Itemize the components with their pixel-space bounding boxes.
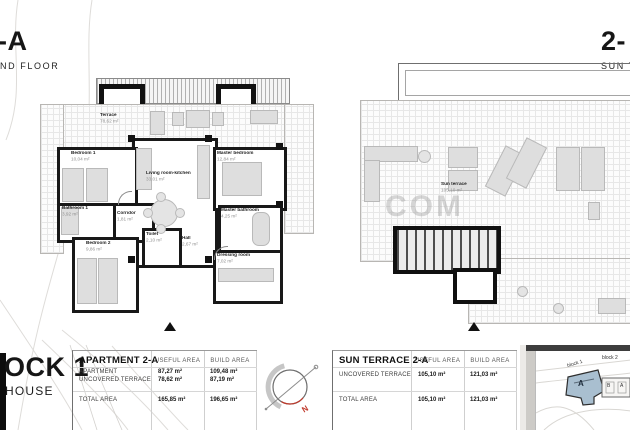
pillar xyxy=(128,256,135,263)
total-value: 105,10 m² xyxy=(418,397,445,403)
room-label-master-bedroom: Master bedroom12,84 m² xyxy=(217,151,253,163)
page-subtitle-left: ND FLOOR xyxy=(0,61,59,71)
page-title-right: 2- xyxy=(601,26,626,57)
floor-plan-sheet: -A ND FLOOR 2- SUN TE xyxy=(0,0,630,430)
table-rule xyxy=(333,367,517,368)
north-marker-icon xyxy=(468,322,480,331)
dining-chair xyxy=(156,192,166,202)
site-map: block 1 block 2 A B A xyxy=(520,345,630,430)
table-rule xyxy=(73,367,257,368)
site-map-side-strip xyxy=(526,351,535,430)
room-label-master-bathroom: Master bathroom4,25 m² xyxy=(221,208,259,220)
col-header-useful: USEFUL AREA xyxy=(151,358,204,364)
sun-lounger xyxy=(556,147,580,191)
table-rule xyxy=(73,391,257,392)
block-subtitle: HOUSE xyxy=(5,384,54,398)
table-title: APARTMENT 2-A xyxy=(79,355,158,366)
stair-annex xyxy=(453,268,497,304)
terrace-chair xyxy=(172,112,184,126)
pillar xyxy=(205,256,212,263)
terrace-lounger xyxy=(150,111,165,135)
bed xyxy=(86,168,108,202)
total-value: 196,65 m² xyxy=(210,397,237,403)
total-label: TOTAL AREA xyxy=(79,397,117,403)
total-label: TOTAL AREA xyxy=(339,397,377,403)
table-rule xyxy=(333,391,517,392)
wardrobe xyxy=(218,268,274,282)
round-table xyxy=(553,303,564,314)
col-header-build: BUILD AREA xyxy=(464,358,516,364)
dining-chair xyxy=(143,208,153,218)
compass-icon: N xyxy=(254,353,326,423)
pillar xyxy=(276,201,283,208)
sofa xyxy=(136,148,152,190)
pillar xyxy=(205,135,212,142)
room-label-dressing: Dressing room7,02 m² xyxy=(217,253,250,265)
stair-core xyxy=(393,226,501,274)
room-label-bathroom1: Bathroom 13,92 m² xyxy=(62,206,88,218)
pillar xyxy=(128,135,135,142)
dining-table xyxy=(150,199,178,227)
roof-outline-inner xyxy=(405,70,630,96)
row-value: 87,27 m² xyxy=(158,369,182,375)
total-value: 121,03 m² xyxy=(470,397,497,403)
lounge-chair xyxy=(448,147,478,168)
watermark-text: COM xyxy=(385,190,464,224)
site-map-card: block 1 block 2 A B A xyxy=(535,351,630,430)
row-value: 78,62 m² xyxy=(158,377,182,383)
row-label: APARTMENT xyxy=(79,369,117,375)
room-label-corridor: Corridor1,81 m² xyxy=(117,211,136,223)
unit-a-label: A xyxy=(578,379,584,388)
room-label-bedroom2: Bedroom 29,86 m² xyxy=(86,241,110,253)
master-bed xyxy=(222,162,262,196)
block2-unit-a-label: A xyxy=(620,383,623,389)
total-value: 165,85 m² xyxy=(158,397,185,403)
bed xyxy=(62,168,84,202)
room-label-hall: Hall2,67 m² xyxy=(182,236,198,248)
row-label: UNCOVERED TERRACE xyxy=(339,372,411,378)
kitchen-counter xyxy=(197,145,210,199)
page-title-left: -A xyxy=(0,26,28,57)
side-table xyxy=(418,150,431,163)
sun-lounger xyxy=(581,147,605,191)
pillar xyxy=(276,143,283,150)
ac-unit xyxy=(588,202,600,220)
room-label-bedroom1: Bedroom 110,04 m² xyxy=(71,151,95,163)
round-table xyxy=(517,286,528,297)
block2-unit-b-label: B xyxy=(607,383,610,389)
row-value: 105,10 m² xyxy=(418,372,445,378)
north-marker-icon xyxy=(164,322,176,331)
bed xyxy=(77,258,97,304)
block1-unit-a-shape xyxy=(566,370,604,405)
col-header-build: BUILD AREA xyxy=(204,358,256,364)
room-label-toilet: Toilet2,10 m² xyxy=(146,232,162,244)
dining-chair xyxy=(175,208,185,218)
block2-label: block 2 xyxy=(602,355,618,361)
terrace-table xyxy=(186,110,210,128)
row-value: 109,48 m² xyxy=(210,369,237,375)
row-value: 87,19 m² xyxy=(210,377,234,383)
area-table-sun-terrace: SUN TERRACE 2-A USEFUL AREA BUILD AREA U… xyxy=(332,350,517,430)
row-label: UNCOVERED TERRACE xyxy=(79,377,151,383)
outdoor-sofa xyxy=(364,160,380,202)
terrace-chair xyxy=(212,112,224,126)
row-value: 121,03 m² xyxy=(470,372,497,378)
room-label-terrace: Terrace78,62 m² xyxy=(100,113,118,125)
col-header-useful: USEFUL AREA xyxy=(411,358,464,364)
terrace-bench xyxy=(250,110,278,124)
compass-north-label: N xyxy=(300,404,310,415)
bed xyxy=(98,258,118,304)
room-label-living: Living room-kitchen33,01 m² xyxy=(146,171,191,183)
planter xyxy=(598,298,626,314)
terrace-deck-right xyxy=(284,104,314,234)
area-table-apartment: APARTMENT 2-A USEFUL AREA BUILD AREA APA… xyxy=(72,350,257,430)
